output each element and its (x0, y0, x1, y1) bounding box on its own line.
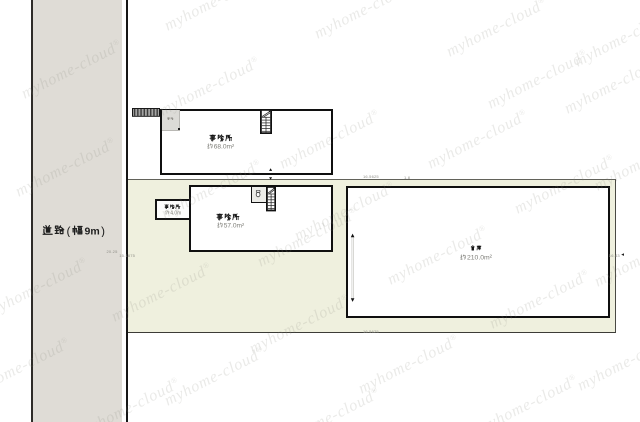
svg-text:210.0m²: 210.0m² (467, 255, 493, 262)
svg-text:57.0m²: 57.0m² (224, 222, 245, 228)
svg-text:): ) (101, 224, 105, 237)
svg-text:(: ( (67, 224, 71, 237)
svg-text:68.0m²: 68.0m² (214, 144, 235, 150)
svg-text:9m: 9m (85, 226, 100, 237)
